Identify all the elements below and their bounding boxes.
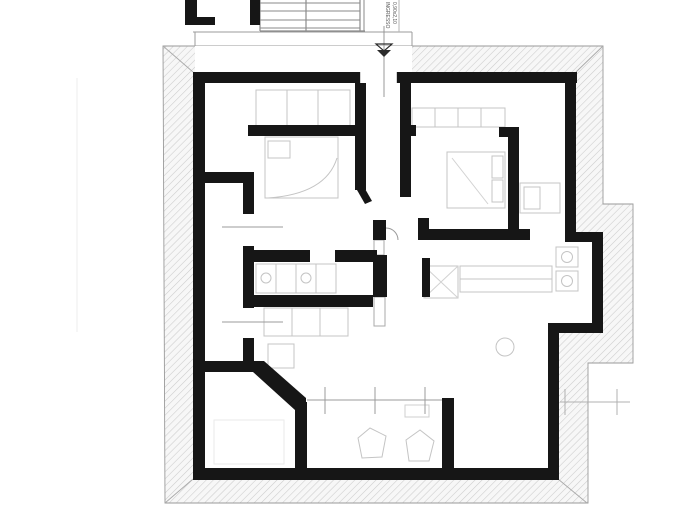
walls-rect xyxy=(499,127,519,137)
walls-rect xyxy=(203,361,253,372)
shaft-niche xyxy=(374,297,385,326)
walls-rect xyxy=(193,72,205,480)
walls-rect xyxy=(193,468,559,480)
walls-rect xyxy=(250,0,260,25)
walls-rect xyxy=(195,72,360,83)
walls-rect xyxy=(442,398,454,479)
walls-rect xyxy=(422,258,430,297)
walls-rect xyxy=(508,127,519,240)
walls-rect xyxy=(548,333,559,479)
walls-rect xyxy=(295,402,307,479)
walls-rect xyxy=(248,125,365,136)
floor-plan-drawing: INGRESSO0,90x2,10 xyxy=(0,0,700,525)
walls-rect xyxy=(565,72,576,234)
walls-rect xyxy=(400,125,416,136)
walls-rect xyxy=(335,250,377,262)
entrance-label-line2: 0,90x2,10 xyxy=(391,2,397,24)
walls-rect xyxy=(397,72,577,83)
hatch-band-rect xyxy=(195,46,412,72)
walls-rect xyxy=(592,232,603,333)
walls-rect xyxy=(185,17,215,25)
walls-rect xyxy=(548,323,603,333)
walls-rect xyxy=(253,295,373,307)
walls-rect xyxy=(355,83,366,190)
walls-rect xyxy=(243,172,254,214)
walls-rect xyxy=(253,250,310,262)
floor-plan-page: INGRESSO0,90x2,10 xyxy=(0,0,700,525)
floor-plan-layers: INGRESSO0,90x2,10 xyxy=(77,0,633,503)
walls-rect xyxy=(373,220,386,240)
walls-rect xyxy=(400,83,411,197)
walls-rect xyxy=(243,246,254,308)
entrance-label-line1: INGRESSO xyxy=(384,2,390,29)
